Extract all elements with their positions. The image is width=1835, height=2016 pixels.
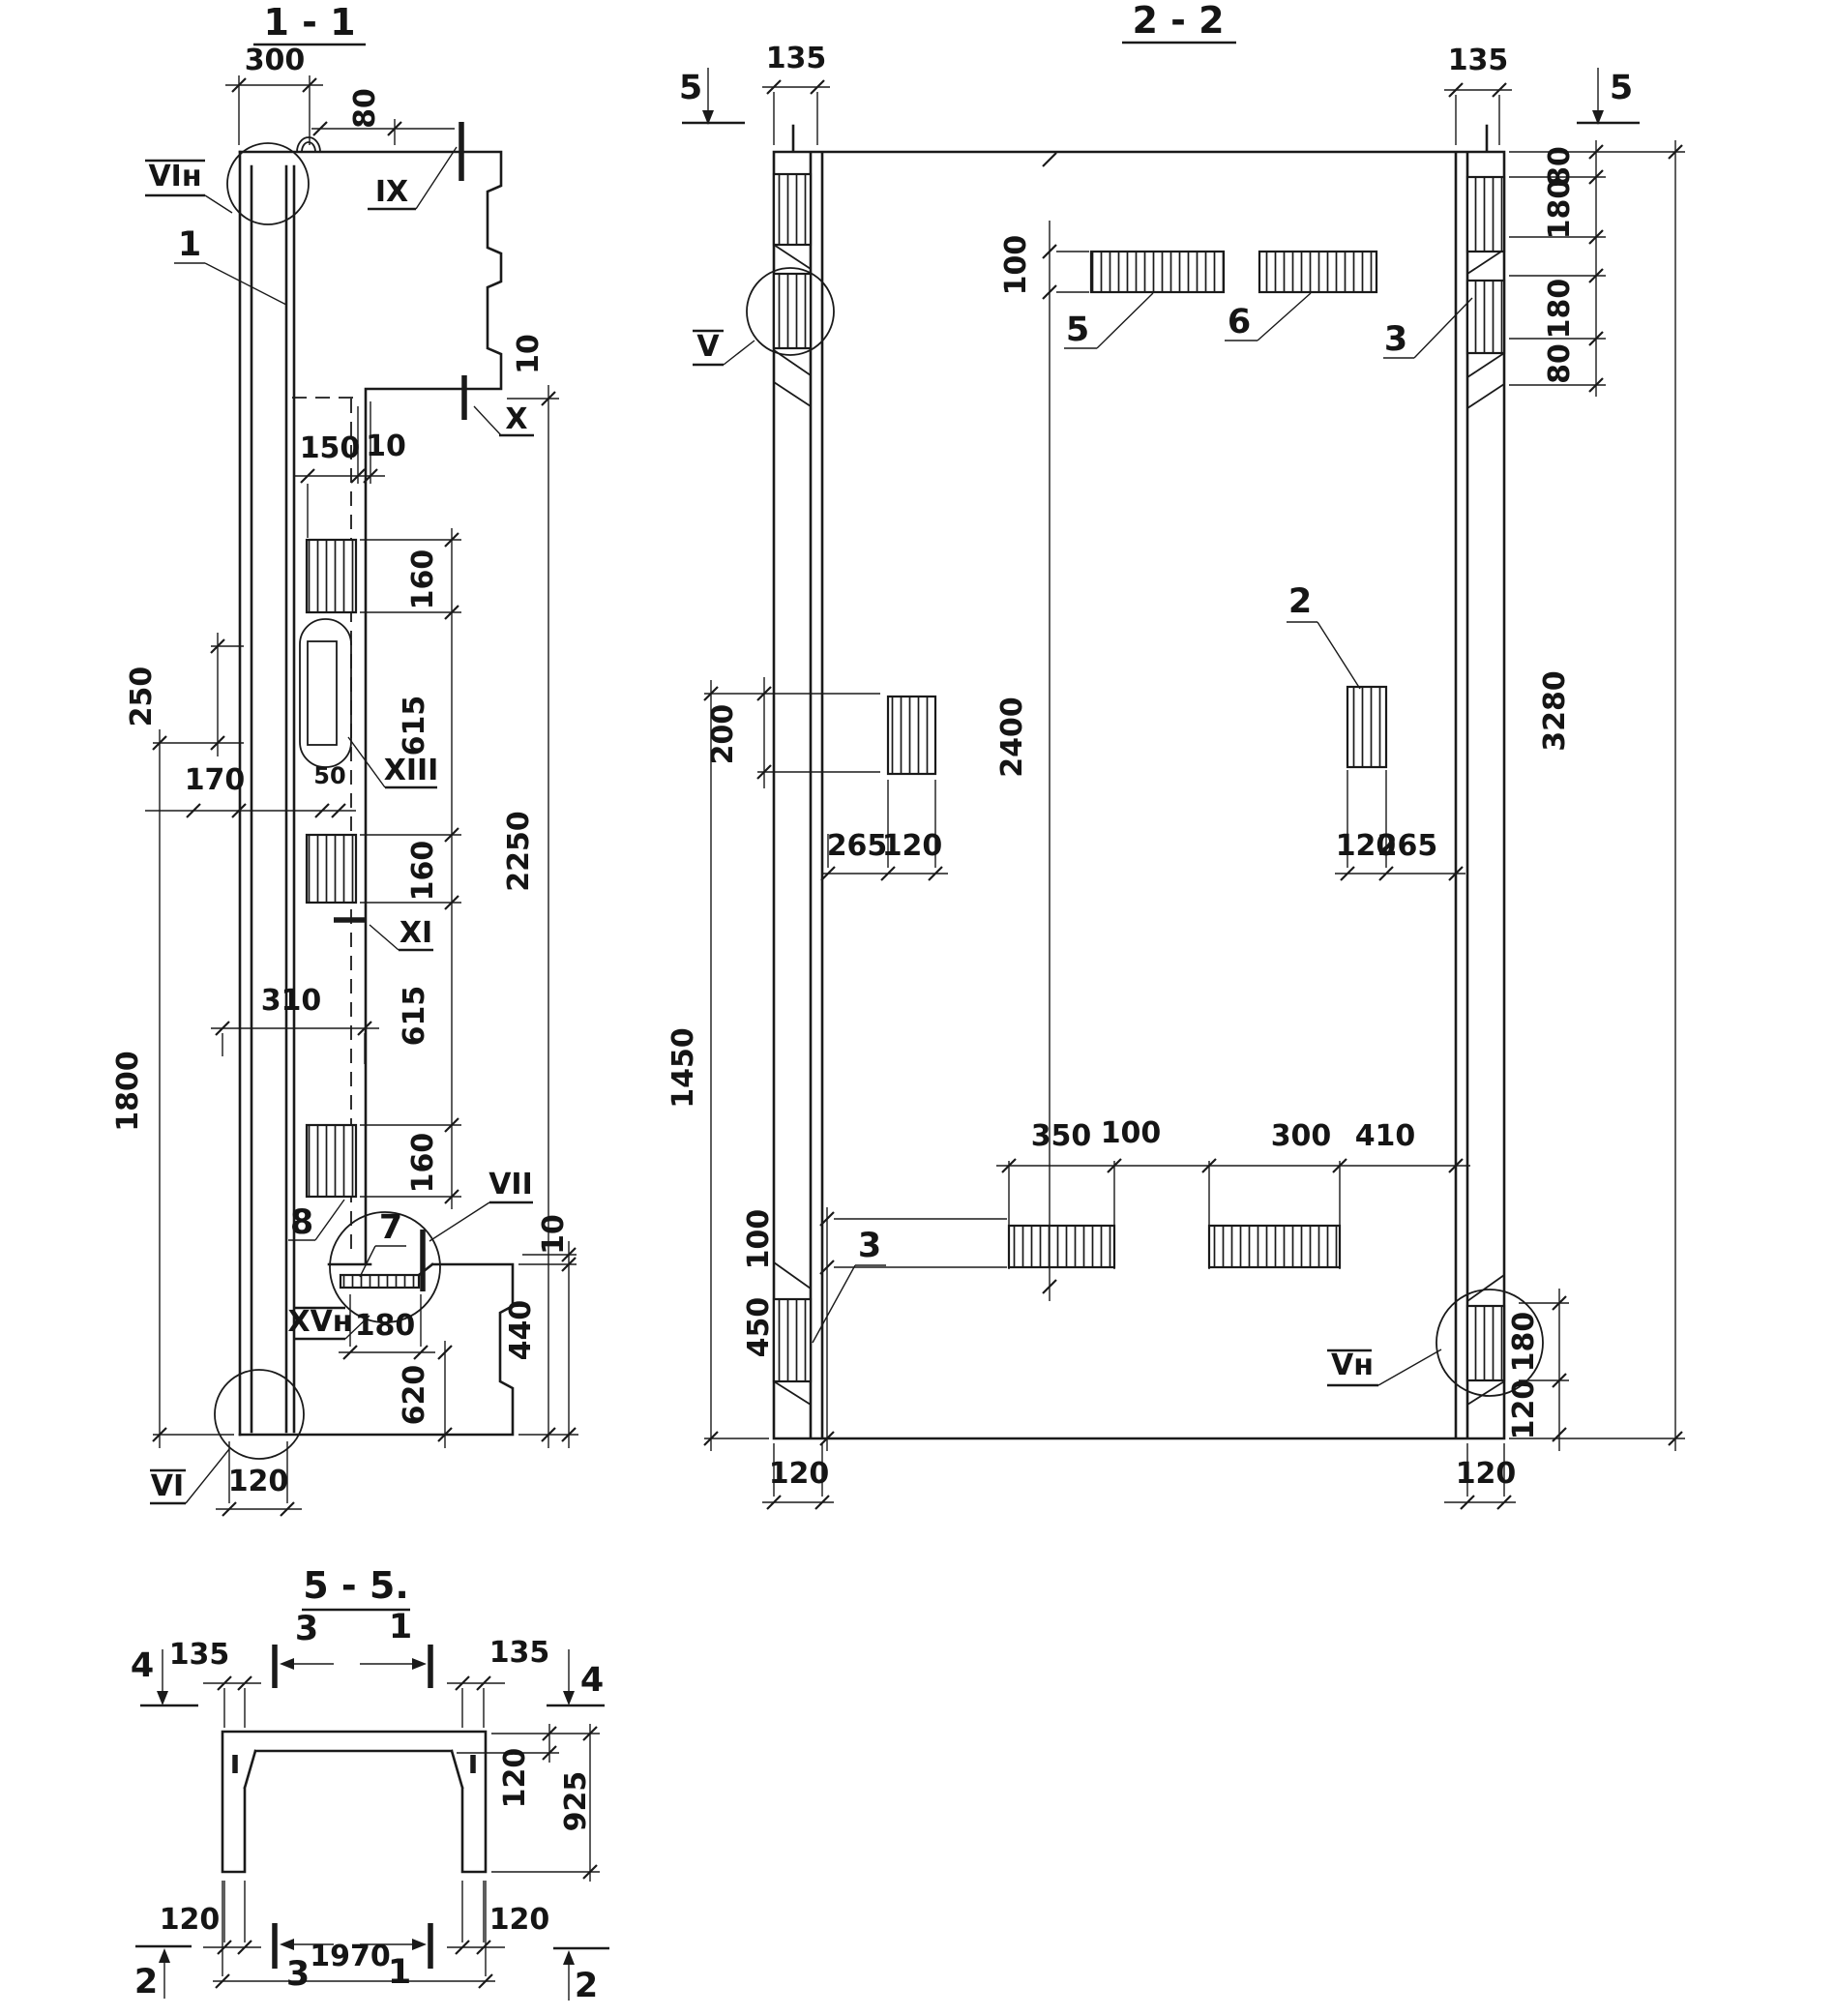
dim-250: 250 — [125, 667, 159, 727]
slot-inner — [308, 641, 337, 745]
panel-plate-6 — [1259, 252, 1376, 292]
callout-3-bottom: 3 — [858, 1227, 881, 1265]
dim-80-top: 80 — [348, 88, 382, 129]
detail-circle-VI — [215, 1370, 304, 1459]
mark-VI-bottom: VI — [151, 1469, 184, 1503]
callout-7: 7 — [379, 1208, 402, 1247]
dim-160-c: 160 — [406, 1133, 440, 1194]
panel-plate-row-b — [1209, 1226, 1340, 1267]
marker-4-right: 4 — [580, 1661, 604, 1700]
dim-150: 150 — [300, 431, 361, 465]
dim-160-a: 160 — [406, 549, 440, 610]
dim-120-foot-right: 120 — [1456, 1457, 1517, 1491]
dim-120-br: 120 — [1507, 1379, 1541, 1440]
marker-5-left: 5 — [679, 69, 702, 107]
dim-2250: 2250 — [502, 811, 536, 892]
dim-10-web: 10 — [366, 430, 406, 463]
dimension-ticks — [153, 78, 1682, 1988]
section-2-2 — [682, 43, 1685, 1502]
dim-410: 410 — [1355, 1119, 1416, 1153]
panel-plate — [888, 697, 935, 774]
dim-50: 50 — [313, 762, 345, 789]
callout-3-top: 3 — [1384, 320, 1407, 359]
dim-1970: 1970 — [310, 1940, 391, 1973]
dim-100-bl: 100 — [742, 1209, 776, 1270]
mark-VII: VII — [488, 1168, 533, 1201]
marker-5-right: 5 — [1610, 69, 1633, 107]
marker-3-bottom: 3 — [286, 1955, 310, 1994]
dim-135-s55-right: 135 — [489, 1636, 550, 1670]
dim-925: 925 — [559, 1771, 593, 1832]
dim-2400: 2400 — [995, 697, 1029, 778]
lifting-loop — [297, 137, 320, 152]
dim-1450: 1450 — [666, 1027, 700, 1109]
mark-X: X — [505, 402, 527, 436]
dim-350: 350 — [1031, 1119, 1092, 1153]
column-plate — [774, 174, 811, 245]
title-section-2-2: 2 - 2 — [1132, 0, 1224, 42]
mark-VIn-top: VIн — [148, 160, 201, 193]
marker-2-right: 2 — [575, 1967, 598, 2005]
dim-100-row: 100 — [1101, 1116, 1162, 1150]
embed-plate — [307, 1125, 356, 1197]
marker-2-left: 2 — [134, 1963, 158, 2001]
dim-300: 300 — [245, 44, 306, 77]
dim-615-a: 615 — [398, 696, 431, 756]
mark-XIII: XIII — [384, 754, 439, 787]
mark-V: V — [696, 330, 720, 364]
dim-1800: 1800 — [111, 1051, 145, 1132]
dim-265-left: 265 — [827, 829, 888, 863]
callout-5: 5 — [1066, 311, 1089, 349]
drawing-sheet: 1 - 130080VIн1IXX1015010160615XIII501702… — [0, 0, 1835, 2016]
dim-180-br: 180 — [1507, 1312, 1541, 1373]
callout-6: 6 — [1228, 303, 1251, 341]
labels-layer: 1 - 130080VIн1IXX1015010160615XIII501702… — [111, 0, 1633, 2005]
dim-450: 450 — [742, 1297, 776, 1358]
title-section-5-5: 5 - 5. — [303, 1564, 409, 1607]
dim-440: 440 — [504, 1300, 538, 1361]
callout-2: 2 — [1288, 582, 1312, 621]
panel-plate-5 — [1091, 252, 1224, 292]
mark-XVn: XVн — [287, 1305, 352, 1339]
column-plate — [1467, 177, 1504, 252]
panel-plate-row-a — [1009, 1226, 1114, 1267]
dim-80-r2: 80 — [1543, 343, 1577, 384]
mark-XI: XI — [400, 916, 432, 950]
dim-180-s11: 180 — [355, 1309, 416, 1343]
callout-1: 1 — [178, 225, 201, 264]
embed-plate — [307, 835, 356, 903]
dim-180-r1: 180 — [1543, 179, 1577, 240]
dim-10-bottom: 10 — [537, 1214, 571, 1255]
column-plate — [774, 1299, 811, 1381]
embed-plate — [307, 540, 356, 612]
marker-3-top: 3 — [295, 1610, 318, 1648]
dim-120-s11: 120 — [228, 1465, 289, 1498]
dim-120-s55-bl: 120 — [160, 1903, 221, 1937]
dim-310: 310 — [261, 984, 322, 1018]
dim-200: 200 — [706, 704, 740, 765]
dim-10-flange: 10 — [512, 334, 546, 374]
dim-3280: 3280 — [1538, 670, 1572, 752]
dim-180-r2: 180 — [1543, 279, 1577, 340]
dim-120-mid-left: 120 — [882, 829, 943, 863]
title-section-1-1: 1 - 1 — [263, 1, 355, 44]
dim-300-row: 300 — [1271, 1119, 1332, 1153]
marker-4-left: 4 — [131, 1646, 154, 1685]
dim-120-foot-left: 120 — [769, 1457, 830, 1491]
dim-120-slab: 120 — [498, 1748, 532, 1809]
panel-plate-2 — [1347, 687, 1386, 767]
dim-135-right: 135 — [1448, 44, 1509, 77]
dim-120-s55-br: 120 — [489, 1903, 550, 1937]
dim-100-top: 100 — [999, 235, 1033, 296]
dim-135-left: 135 — [766, 42, 827, 75]
column-plate — [1467, 1306, 1504, 1380]
marker-1-top: 1 — [389, 1608, 412, 1646]
dim-615-b: 615 — [398, 986, 431, 1047]
column-plate — [1467, 281, 1504, 353]
column-plate — [774, 274, 811, 348]
dim-160-b: 160 — [406, 841, 440, 902]
technical-drawing-svg: 1 - 130080VIн1IXX1015010160615XIII501702… — [0, 0, 1835, 2016]
mark-IX: IX — [375, 175, 408, 209]
dim-170: 170 — [185, 763, 246, 797]
dim-620: 620 — [398, 1365, 431, 1426]
dim-135-s55-left: 135 — [169, 1638, 230, 1672]
callout-8: 8 — [290, 1203, 313, 1242]
marker-1-bottom: 1 — [388, 1953, 411, 1992]
mark-Vn: Vн — [1331, 1349, 1374, 1382]
dim-265-right: 265 — [1377, 829, 1438, 863]
embed-strip-7 — [340, 1275, 419, 1288]
